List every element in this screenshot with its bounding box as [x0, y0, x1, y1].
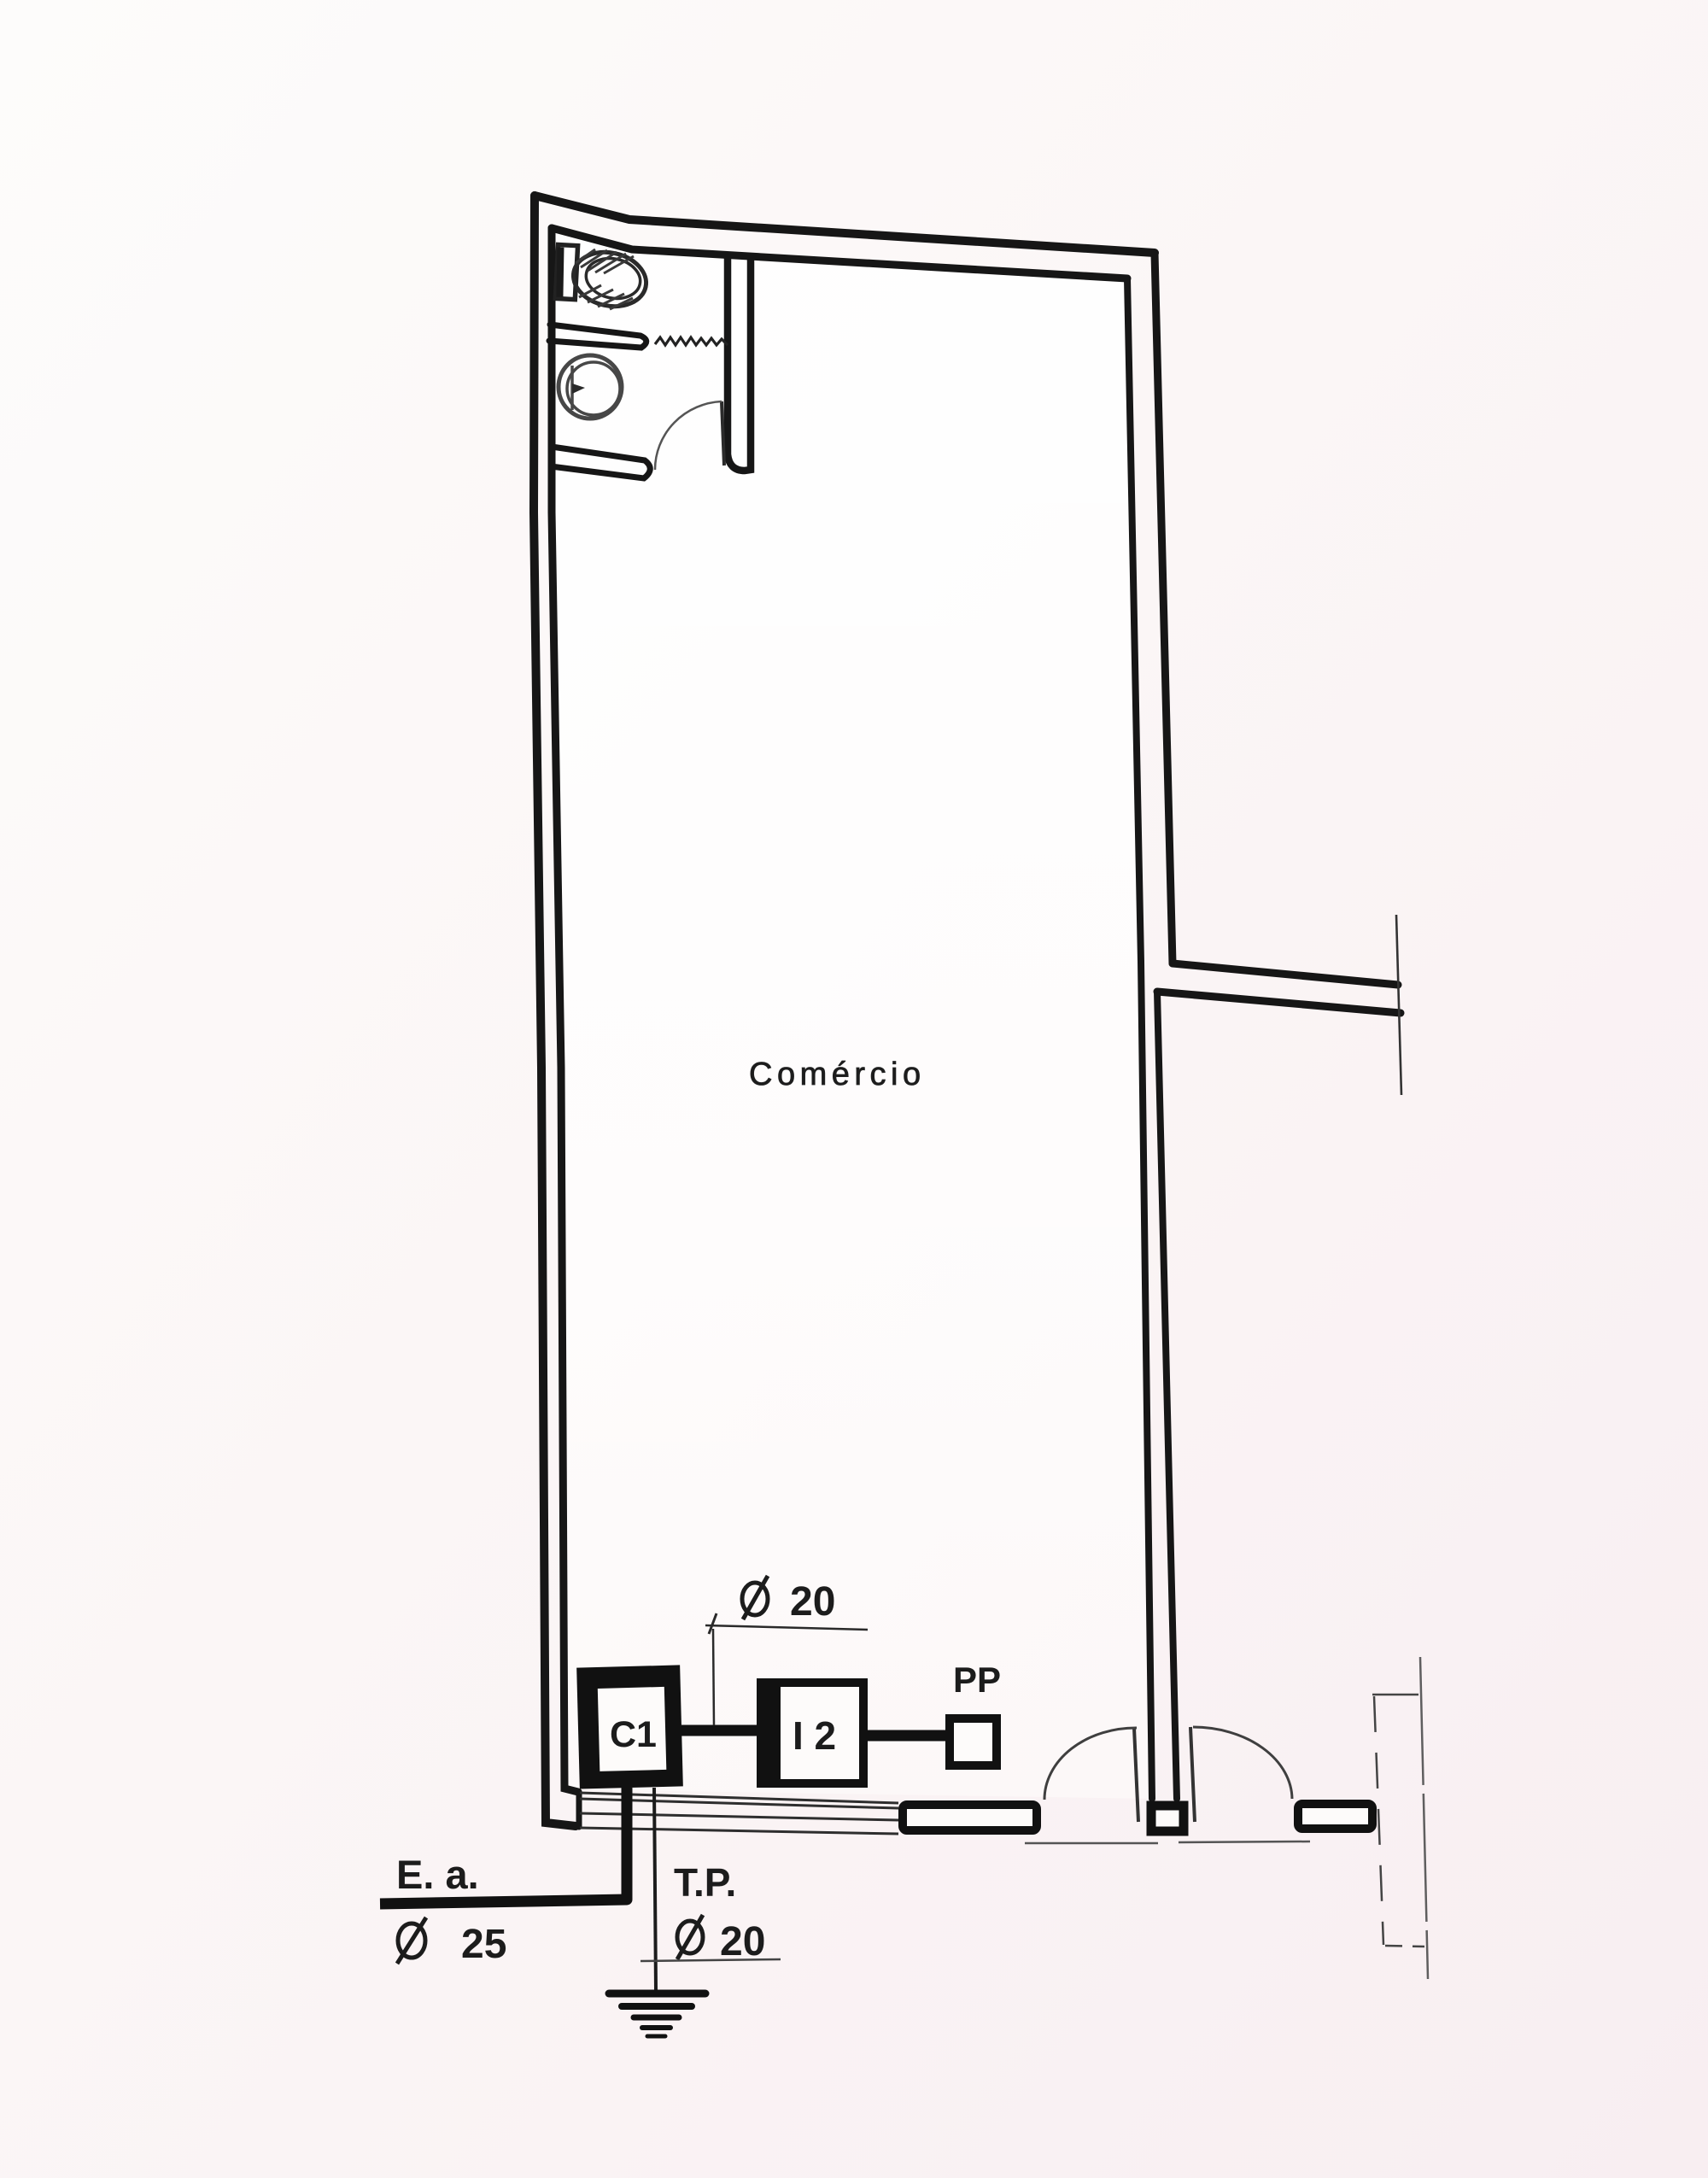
- svg-text:I 2: I 2: [793, 1713, 836, 1758]
- svg-text:Comércio: Comércio: [749, 1057, 926, 1092]
- svg-text:20: 20: [790, 1579, 835, 1625]
- svg-text:E. a.: E. a.: [396, 1852, 479, 1897]
- svg-text:25: 25: [461, 1922, 506, 1967]
- svg-text:C1: C1: [610, 1714, 657, 1755]
- svg-text:20: 20: [720, 1919, 765, 1964]
- svg-text:PP: PP: [953, 1660, 1001, 1700]
- svg-text:T.P.: T.P.: [674, 1860, 736, 1905]
